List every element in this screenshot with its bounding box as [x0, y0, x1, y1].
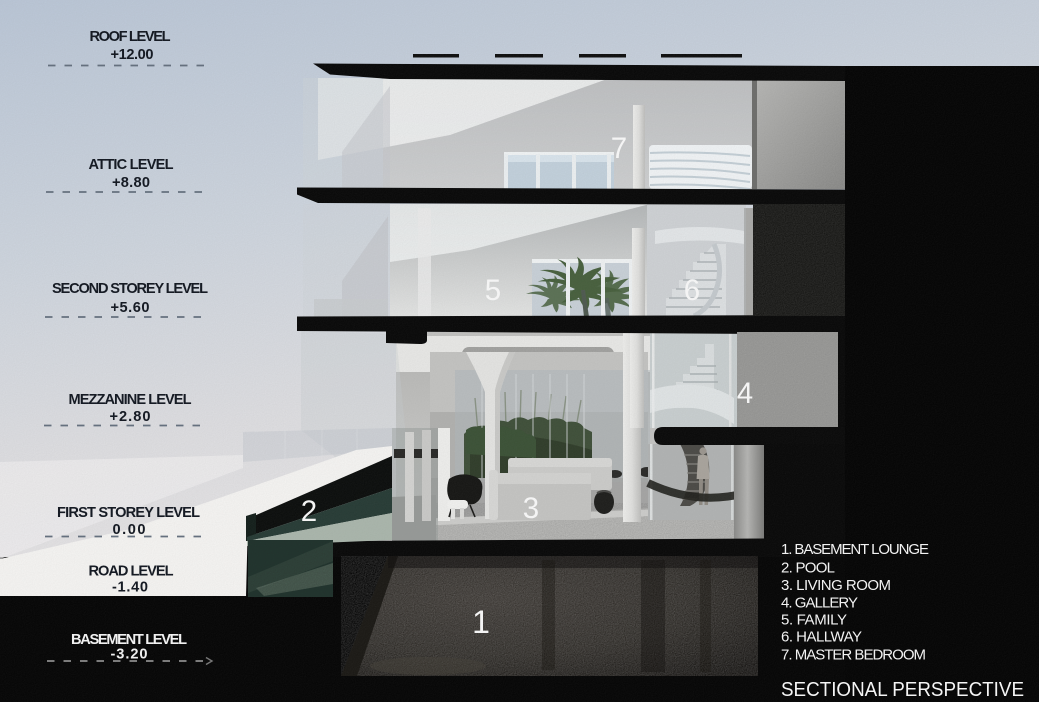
svg-text:3: 3	[523, 492, 539, 525]
svg-text:2. POOL: 2. POOL	[781, 560, 835, 577]
svg-text:+12.00: +12.00	[111, 47, 154, 63]
svg-text:MEZZANINE LEVEL: MEZZANINE LEVEL	[69, 392, 192, 408]
svg-text:+2.80: +2.80	[110, 409, 151, 425]
svg-text:ROAD LEVEL: ROAD LEVEL	[89, 564, 174, 580]
svg-text:5. FAMILY: 5. FAMILY	[781, 612, 847, 629]
svg-text:ROOF LEVEL: ROOF LEVEL	[90, 29, 171, 45]
svg-text:1: 1	[472, 604, 490, 640]
svg-text:0.00: 0.00	[113, 522, 146, 538]
svg-text:+5.60: +5.60	[111, 300, 150, 316]
svg-text:4. GALLERY: 4. GALLERY	[781, 595, 858, 612]
svg-text:-1.40: -1.40	[112, 580, 148, 596]
svg-text:7. MASTER BEDROOM: 7. MASTER BEDROOM	[781, 647, 926, 664]
svg-text:5: 5	[485, 274, 501, 307]
svg-text:ATTIC LEVEL: ATTIC LEVEL	[89, 157, 174, 173]
svg-text:2: 2	[301, 495, 317, 528]
svg-text:6. HALLWAY: 6. HALLWAY	[781, 629, 862, 646]
svg-text:6: 6	[684, 274, 700, 307]
svg-text:3. LIVING ROOM: 3. LIVING ROOM	[781, 577, 891, 594]
svg-text:4: 4	[737, 377, 753, 410]
svg-text:FIRST STOREY LEVEL: FIRST STOREY LEVEL	[57, 505, 200, 521]
svg-text:1. BASEMENT LOUNGE: 1. BASEMENT LOUNGE	[781, 541, 929, 558]
svg-text:-3.20: -3.20	[111, 647, 148, 663]
svg-text:7: 7	[611, 132, 627, 165]
svg-text:SECOND STOREY LEVEL: SECOND STOREY LEVEL	[52, 281, 208, 297]
svg-text:SECTIONAL PERSPECTIVE: SECTIONAL PERSPECTIVE	[781, 678, 1024, 701]
svg-text:+8.80: +8.80	[112, 175, 150, 191]
